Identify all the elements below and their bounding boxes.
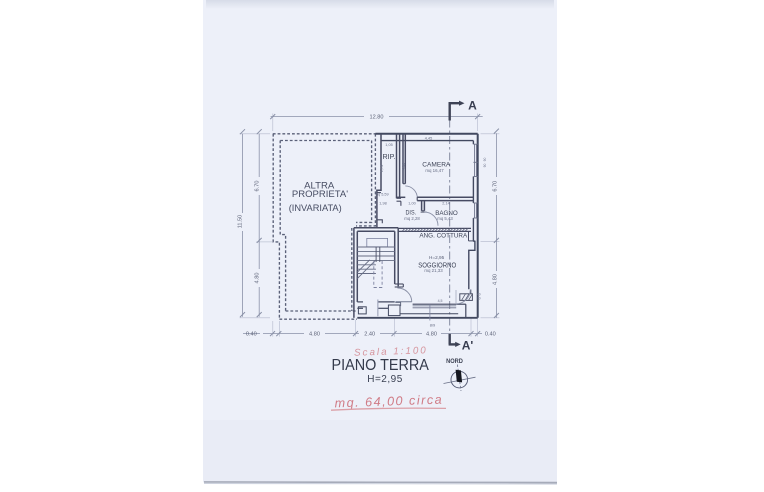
svg-text:4,18: 4,18 — [401, 163, 405, 170]
svg-text:1,98: 1,98 — [379, 202, 386, 206]
svg-text:4.80: 4.80 — [255, 273, 261, 284]
svg-text:0.40: 0.40 — [246, 332, 257, 338]
svg-text:6.70: 6.70 — [492, 181, 498, 192]
svg-text:mq 5,59: mq 5,59 — [375, 193, 389, 197]
svg-text:mq 5,43: mq 5,43 — [437, 216, 453, 221]
svg-text:H=2,95: H=2,95 — [429, 255, 445, 260]
svg-text:4,45: 4,45 — [425, 137, 432, 141]
svg-text:4.80: 4.80 — [426, 332, 437, 338]
svg-text:NORD: NORD — [446, 358, 463, 365]
svg-text:4.80: 4.80 — [492, 274, 498, 285]
svg-text:6.70: 6.70 — [255, 181, 261, 192]
svg-text:2.40: 2.40 — [364, 332, 375, 338]
svg-text:12.80: 12.80 — [370, 115, 384, 121]
svg-text:1,73: 1,73 — [380, 165, 384, 172]
svg-text:1,05: 1,05 — [385, 143, 392, 147]
svg-text:RIP.: RIP. — [383, 154, 396, 161]
svg-text:4,5: 4,5 — [438, 299, 443, 303]
svg-text:mq 21,33: mq 21,33 — [424, 268, 443, 273]
svg-text:0.40: 0.40 — [485, 332, 496, 338]
svg-text:8/9: 8/9 — [430, 323, 436, 328]
svg-text:70: 70 — [477, 296, 481, 300]
svg-text:mq 16,47: mq 16,47 — [425, 168, 444, 173]
svg-text:90: 90 — [483, 164, 487, 168]
svg-text:mq 2,28: mq 2,28 — [404, 216, 420, 221]
svg-text:A: A — [468, 99, 477, 113]
svg-text:PIANO TERRA: PIANO TERRA — [332, 357, 430, 374]
svg-text:4.80: 4.80 — [309, 332, 320, 338]
svg-text:1,00: 1,00 — [408, 201, 415, 205]
svg-text:A': A' — [462, 339, 474, 353]
svg-text:2,14: 2,14 — [442, 201, 449, 205]
svg-text:(INVARIATA): (INVARIATA) — [289, 203, 342, 214]
svg-text:11.50: 11.50 — [238, 215, 244, 229]
svg-text:90: 90 — [483, 158, 487, 162]
svg-text:PROPRIETA': PROPRIETA' — [292, 189, 348, 200]
svg-text:H=2,95: H=2,95 — [367, 374, 403, 385]
svg-text:ANG. COTTURA: ANG. COTTURA — [419, 232, 468, 239]
